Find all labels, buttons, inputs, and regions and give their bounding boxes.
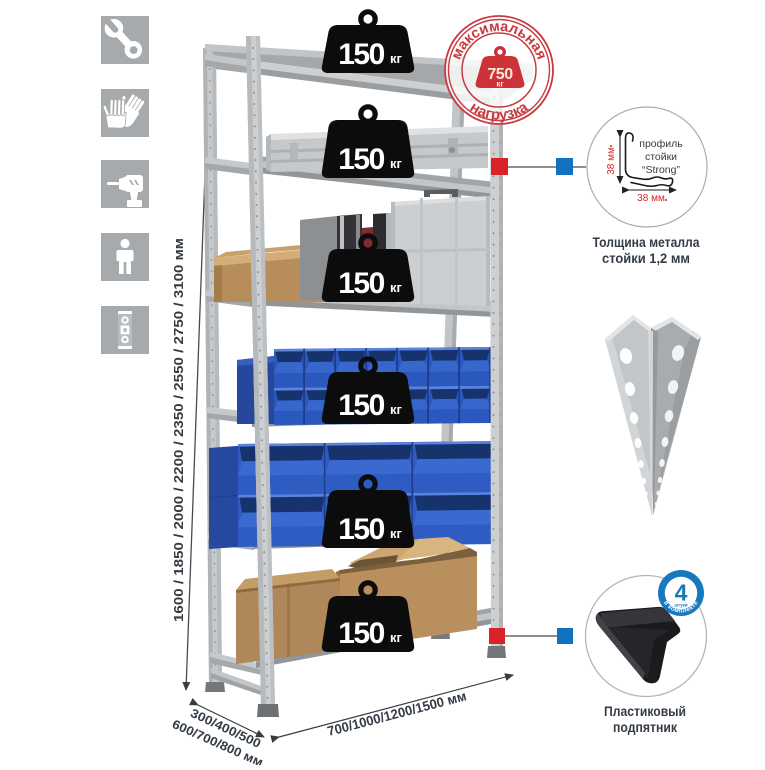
- svg-text:стойки 1,2 мм: стойки 1,2 мм: [602, 251, 690, 266]
- svg-text:кг: кг: [390, 280, 403, 295]
- svg-text:“Strong”: “Strong”: [642, 164, 680, 176]
- svg-text:150: 150: [338, 143, 384, 176]
- svg-text:1600 / 1850 / 2000 / 2200 / 23: 1600 / 1850 / 2000 / 2200 / 2350 / 2550 …: [171, 238, 186, 622]
- svg-text:кг: кг: [390, 630, 403, 645]
- svg-text:38 мм: 38 мм: [637, 193, 665, 204]
- svg-text:Толщина металла: Толщина металла: [593, 235, 700, 250]
- svg-text:кг: кг: [390, 526, 403, 541]
- svg-text:150: 150: [338, 513, 384, 546]
- svg-text:150: 150: [338, 617, 384, 650]
- svg-text:150: 150: [338, 389, 384, 422]
- svg-text:кг: кг: [496, 80, 504, 89]
- svg-text:Пластиковый: Пластиковый: [604, 704, 686, 719]
- svg-text:кг: кг: [390, 402, 403, 417]
- svg-text:подпятник: подпятник: [613, 720, 677, 735]
- svg-text:стойки: стойки: [645, 151, 677, 163]
- svg-text:профиль: профиль: [639, 138, 683, 150]
- svg-text:150: 150: [338, 38, 384, 71]
- svg-text:150: 150: [338, 267, 384, 300]
- svg-text:кг: кг: [390, 156, 403, 171]
- svg-text:38 мм: 38 мм: [606, 147, 617, 175]
- svg-text:штуки: штуки: [675, 603, 688, 608]
- svg-text:кг: кг: [390, 51, 403, 66]
